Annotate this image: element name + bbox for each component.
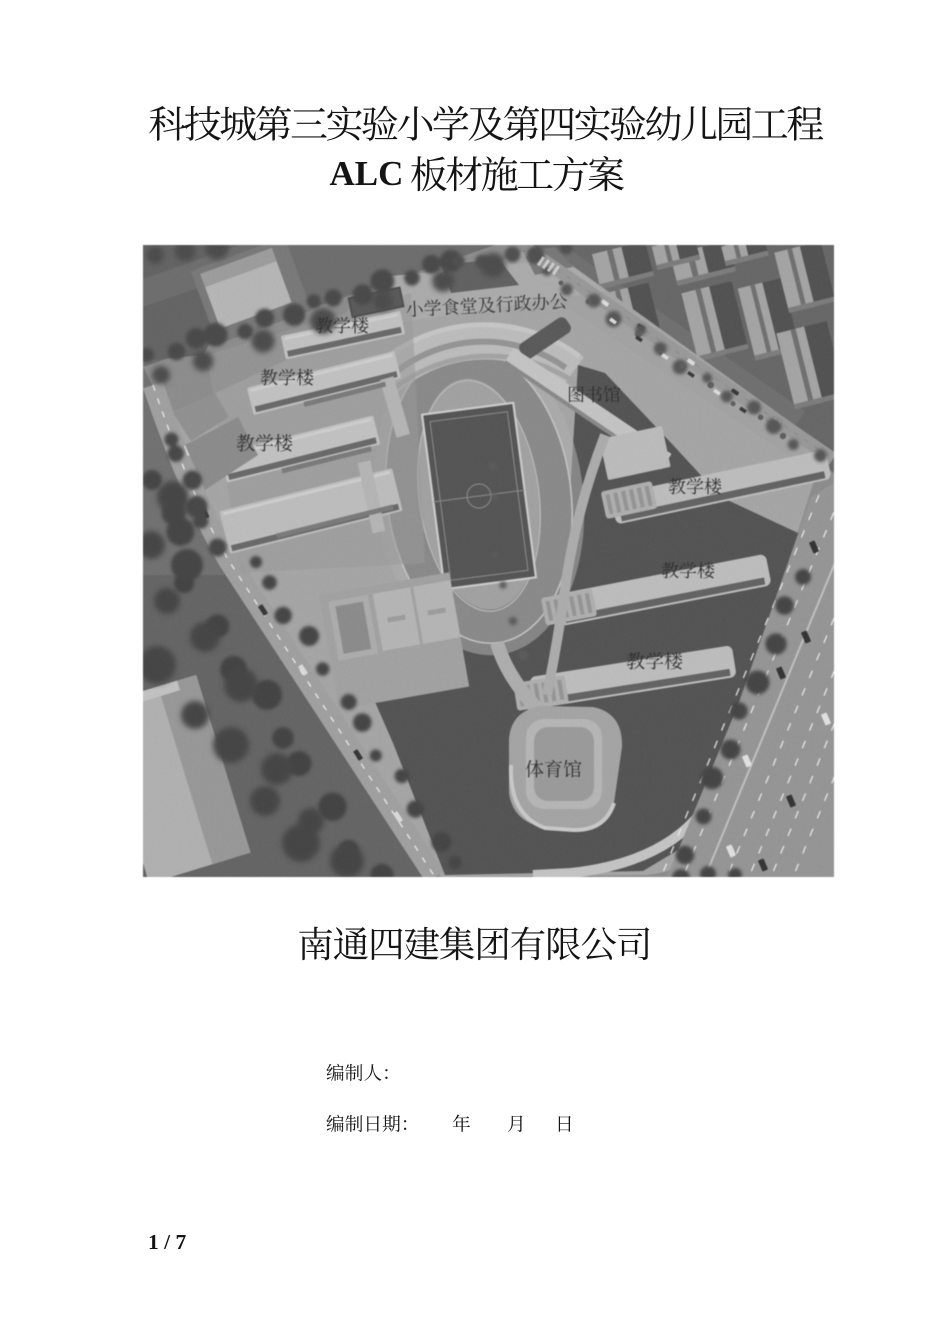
svg-text:ALC: ALC <box>330 154 404 193</box>
svg-text:1 / 7: 1 / 7 <box>148 1230 186 1254</box>
